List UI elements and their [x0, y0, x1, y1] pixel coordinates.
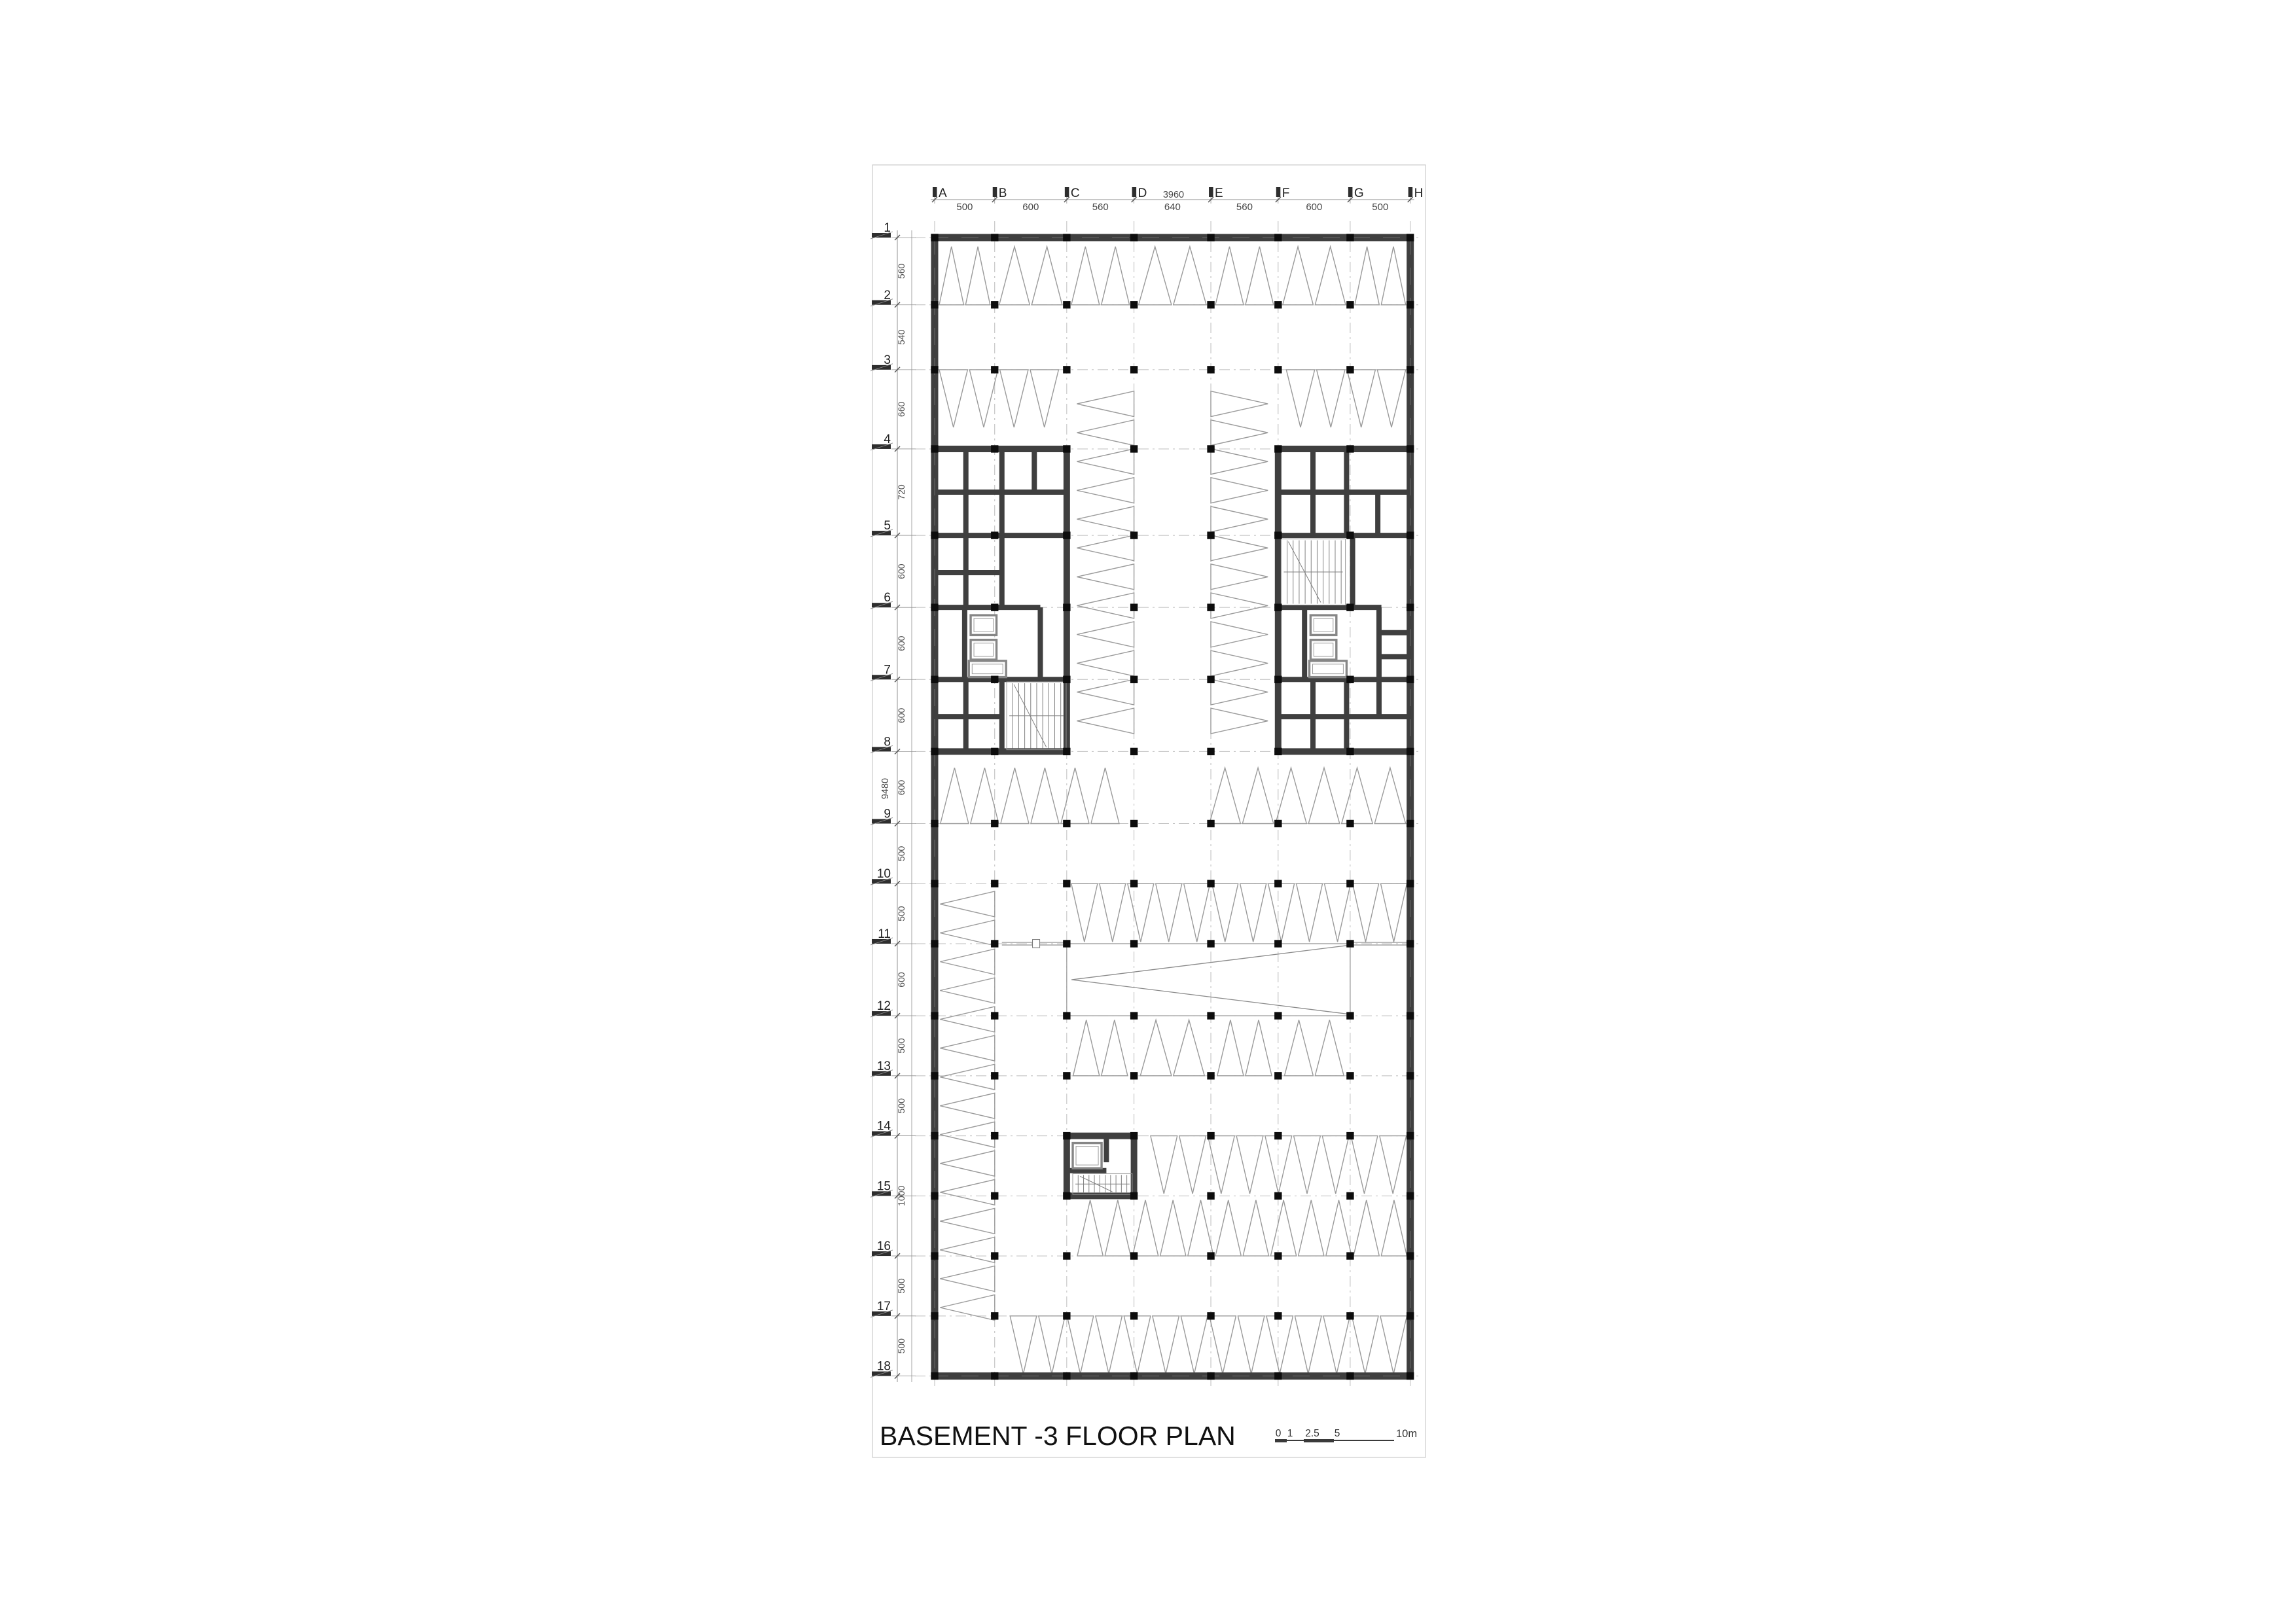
structural-column: [1407, 1372, 1414, 1380]
parking-stall: [1077, 679, 1134, 705]
structural-column: [1346, 234, 1354, 241]
structural-column: [1130, 1252, 1138, 1259]
structural-column: [1407, 1252, 1414, 1259]
structural-column: [991, 1372, 998, 1380]
parking-stall: [1071, 883, 1098, 942]
label: 640: [1164, 202, 1181, 213]
parking-stall: [1212, 883, 1238, 942]
overall-width-dimension: 3960: [1163, 190, 1184, 200]
structural-column: [1130, 820, 1138, 827]
structural-column: [1130, 234, 1138, 241]
parking-stall: [1381, 883, 1407, 942]
structural-column: [1274, 1252, 1282, 1259]
structural-column: [1207, 1072, 1214, 1079]
structural-column: [1207, 531, 1214, 539]
parking-stall: [940, 1093, 995, 1118]
building-walls: [931, 238, 1414, 1376]
parking-stall: [999, 247, 1030, 305]
grid-tag-tick: [1348, 187, 1353, 197]
parking-stall: [1184, 883, 1210, 942]
structural-column: [991, 940, 998, 947]
parking-stall: [1210, 1316, 1236, 1374]
structural-column: [1207, 1192, 1214, 1200]
label: 500: [896, 1098, 906, 1114]
parking-stall: [1270, 1200, 1296, 1256]
structural-column: [1207, 1252, 1214, 1259]
grid-tag-tick: [1276, 187, 1281, 197]
structural-column: [1207, 234, 1214, 241]
structural-column: [1207, 748, 1214, 755]
structural-column: [1346, 676, 1354, 683]
parking-stall: [940, 978, 995, 1003]
parking-stall: [1128, 883, 1154, 942]
parking-stall: [1297, 883, 1323, 942]
parking-stall: [940, 1007, 995, 1032]
structural-column: [1274, 301, 1282, 308]
parking-stall: [1246, 1020, 1272, 1076]
structural-column: [991, 366, 998, 373]
grid-tag-tick: [933, 187, 937, 197]
grid-column-label: D: [1138, 187, 1147, 200]
structural-column: [1274, 1132, 1282, 1139]
parking-stall: [1242, 768, 1274, 823]
structural-column: [1130, 1132, 1138, 1139]
structural-column: [1274, 445, 1282, 452]
structural-column: [1274, 748, 1282, 755]
structural-column: [1130, 445, 1138, 452]
scale-bar-segment: [1275, 1439, 1287, 1442]
structural-column: [1063, 1192, 1070, 1200]
parking-stall: [940, 891, 995, 917]
parking-stall: [1160, 1200, 1186, 1256]
dimension-ruler-left: 5605406607206006006006005005006005005001…: [870, 221, 916, 1382]
structural-column: [1274, 1372, 1282, 1380]
structural-column: [1063, 234, 1070, 241]
parking-stall: [941, 768, 969, 823]
structural-column: [1346, 1312, 1354, 1319]
structural-column: [1346, 940, 1354, 947]
structural-column: [1063, 820, 1070, 827]
parking-stall: [1096, 1316, 1122, 1374]
grid-row-label: 13: [877, 1060, 891, 1073]
structural-column: [1130, 748, 1138, 755]
parking-stall: [1308, 768, 1340, 823]
door-symbol: [1033, 940, 1040, 948]
structural-column: [1063, 940, 1070, 947]
structural-column: [1407, 234, 1414, 241]
drawing-sheet: 500600560640560600500ABCDEFGH56054066072…: [0, 0, 2296, 1623]
parking-stall: [1102, 1020, 1128, 1076]
sheet-border: [872, 165, 1426, 1457]
label: 500: [896, 1278, 906, 1294]
parking-stall: [1342, 768, 1373, 823]
grid-row-label: 7: [884, 663, 891, 677]
structural-column: [1207, 676, 1214, 683]
grid-column-label: F: [1282, 187, 1290, 200]
label: 500: [956, 202, 973, 213]
scale-label-10m: 10m: [1396, 1428, 1417, 1440]
parking-stall: [1132, 1200, 1158, 1256]
structural-column: [991, 1132, 998, 1139]
parking-stall: [1001, 768, 1029, 823]
structural-column: [1207, 301, 1214, 308]
structural-column: [1063, 1252, 1070, 1259]
parking-stall: [1000, 370, 1028, 427]
stair: [1073, 1173, 1132, 1194]
structural-column: [1407, 445, 1414, 452]
structural-column: [1063, 1312, 1070, 1319]
structural-column: [991, 301, 998, 308]
parking-stall: [1326, 1200, 1352, 1256]
parking-stall: [1238, 1316, 1265, 1374]
parking-stall: [1071, 247, 1100, 305]
parking-stall: [940, 1266, 995, 1292]
parking-stall: [1240, 883, 1266, 942]
structural-column: [991, 445, 998, 452]
parking-stall: [1077, 535, 1134, 561]
structural-column: [1063, 748, 1070, 755]
grid-row-label: 2: [884, 289, 891, 302]
parking-stall: [1077, 1200, 1103, 1256]
structural-column: [1407, 940, 1414, 947]
grid-tag-tick: [1065, 187, 1069, 197]
structural-column: [1346, 1072, 1354, 1079]
elevator-shaft: [1310, 661, 1347, 677]
structural-column: [1207, 603, 1214, 611]
parking-stall: [1030, 370, 1058, 427]
parking-stall: [1211, 478, 1268, 503]
parking-stall: [940, 1238, 995, 1263]
parking-stall: [1102, 247, 1130, 305]
structural-column: [1130, 366, 1138, 373]
structural-column: [931, 445, 938, 452]
structural-column: [1207, 1312, 1214, 1319]
structural-column: [1274, 234, 1282, 241]
structural-column: [1274, 676, 1282, 683]
structural-column: [1130, 676, 1138, 683]
label: 600: [896, 635, 906, 651]
structural-column: [931, 301, 938, 308]
parking-stall: [1215, 247, 1244, 305]
structural-column: [1063, 366, 1070, 373]
structural-column: [1274, 531, 1282, 539]
structural-column: [991, 748, 998, 755]
structural-column: [1130, 1012, 1138, 1019]
structural-column: [1407, 603, 1414, 611]
grid-row-label: 3: [884, 353, 891, 367]
scale-label-0: 0: [1276, 1428, 1282, 1439]
parking-stall: [1211, 449, 1268, 474]
structural-column: [1130, 531, 1138, 539]
structural-column: [1063, 445, 1070, 452]
structural-column: [1407, 820, 1414, 827]
parking-stall: [1295, 1316, 1321, 1374]
parking-stall: [1283, 247, 1314, 305]
grid-row-label: 4: [884, 433, 891, 446]
parking-stall: [1243, 1200, 1268, 1256]
grid-row-label: 12: [877, 999, 891, 1013]
parking-stall: [1077, 708, 1134, 734]
parking-stall: [1236, 1136, 1263, 1194]
grid-row-label: 18: [877, 1360, 891, 1374]
structural-column: [991, 1192, 998, 1200]
structural-column: [1407, 676, 1414, 683]
parking-stall: [940, 1150, 995, 1176]
parking-stall: [1317, 370, 1345, 427]
parking-stall: [1077, 420, 1134, 446]
parking-stall: [1211, 391, 1268, 417]
structural-column: [991, 676, 998, 683]
scale-bar-segment: [1304, 1439, 1334, 1442]
label: 560: [896, 263, 906, 279]
structural-column: [1274, 1072, 1282, 1079]
grid-tag-tick: [993, 187, 997, 197]
structural-column: [1346, 880, 1354, 887]
label: 1000: [896, 1186, 906, 1206]
structural-column: [1407, 531, 1414, 539]
parking-stall: [1381, 1200, 1407, 1256]
structural-column: [1130, 1312, 1138, 1319]
parking-stalls: [939, 247, 1407, 1374]
structural-column: [1063, 880, 1070, 887]
structural-column: [1207, 940, 1214, 947]
label: 660: [896, 402, 906, 418]
grid-column-label: C: [1071, 187, 1080, 200]
parking-stall: [1077, 507, 1134, 532]
grid-row-label: 10: [877, 867, 891, 881]
label: 500: [896, 846, 906, 861]
structural-column: [931, 234, 938, 241]
label: 600: [896, 563, 906, 579]
elevator-shaft: [1073, 1143, 1102, 1169]
structural-column: [1130, 1192, 1138, 1200]
parking-stall: [1010, 1316, 1037, 1374]
stair: [1007, 682, 1066, 750]
parking-stall: [1077, 593, 1134, 618]
parking-stall: [1276, 768, 1307, 823]
structural-column: [1407, 1072, 1414, 1079]
parking-stall: [1246, 247, 1274, 305]
structural-column: [931, 940, 938, 947]
structural-column: [1207, 366, 1214, 373]
label: 500: [896, 906, 906, 921]
parking-stall: [1156, 883, 1182, 942]
structural-column: [1207, 820, 1214, 827]
label: 560: [1092, 202, 1109, 213]
parking-stall: [1351, 1136, 1378, 1194]
structural-column: [1346, 820, 1354, 827]
parking-stall: [1077, 651, 1134, 676]
structural-column: [1063, 531, 1070, 539]
parking-stall: [1266, 1316, 1293, 1374]
parking-stall: [1211, 622, 1268, 647]
structural-column: [1407, 1312, 1414, 1319]
scale-label-1: 1: [1287, 1428, 1293, 1439]
parking-stall: [1268, 883, 1295, 942]
parking-stall: [1354, 1200, 1379, 1256]
structural-column: [1407, 1012, 1414, 1019]
parking-stall: [1091, 768, 1119, 823]
parking-stall: [1315, 247, 1346, 305]
structural-column: [931, 1312, 938, 1319]
parking-stall: [1067, 1316, 1094, 1374]
label: 600: [1022, 202, 1039, 213]
parking-stall: [1322, 1136, 1349, 1194]
structural-column: [1063, 301, 1070, 308]
structural-column: [1207, 1012, 1214, 1019]
structural-column: [931, 1072, 938, 1079]
structural-grid-lines: [915, 221, 1420, 1386]
parking-stall: [940, 1064, 995, 1090]
structural-column: [931, 748, 938, 755]
parking-stall: [940, 949, 995, 974]
parking-stall: [1353, 883, 1379, 942]
scale-label-5: 5: [1335, 1428, 1340, 1439]
structural-column: [1346, 1372, 1354, 1380]
structural-column: [1346, 1192, 1354, 1200]
parking-stall: [940, 1122, 995, 1147]
parking-stall: [940, 1179, 995, 1205]
structural-column: [991, 1072, 998, 1079]
parking-stall: [969, 370, 997, 427]
grid-column-label: B: [999, 187, 1007, 200]
parking-stall: [1151, 1136, 1177, 1194]
parking-stall: [1211, 708, 1268, 734]
parking-stall: [1315, 1020, 1344, 1076]
parking-stall: [1100, 883, 1126, 942]
drawing-title: BASEMENT -3 FLOOR PLAN: [880, 1421, 1236, 1450]
parking-stall: [1105, 1200, 1130, 1256]
parking-stall: [1031, 247, 1062, 305]
structural-column: [931, 603, 938, 611]
parking-stall: [1077, 391, 1134, 417]
structural-column: [1274, 603, 1282, 611]
structural-column: [1407, 748, 1414, 755]
parking-stall: [1299, 1200, 1324, 1256]
structural-column: [991, 603, 998, 611]
parking-stall: [1380, 1136, 1407, 1194]
structural-columns: [931, 234, 1414, 1380]
elevator-shaft: [969, 661, 1006, 677]
parking-stall: [1217, 1020, 1244, 1076]
structural-column: [1130, 603, 1138, 611]
parking-stall: [1377, 370, 1405, 427]
parking-stall: [1153, 1316, 1179, 1374]
parking-stall: [1352, 1316, 1378, 1374]
structural-column: [991, 1252, 998, 1259]
parking-stall: [1077, 478, 1134, 503]
parking-stall: [1347, 370, 1375, 427]
line: [1071, 980, 1350, 1014]
grid-row-label: 5: [884, 519, 891, 533]
structural-column: [1130, 301, 1138, 308]
grid-column-label: G: [1354, 187, 1364, 200]
parking-stall: [940, 1295, 995, 1321]
label: 600: [896, 707, 906, 723]
structural-column: [1274, 366, 1282, 373]
parking-stall: [1124, 1316, 1151, 1374]
parking-stall: [1215, 1200, 1241, 1256]
structural-column: [931, 366, 938, 373]
overall-height-dimension: 9480: [880, 778, 891, 799]
ramp: [1002, 940, 1410, 1016]
parking-stall: [1174, 1020, 1205, 1076]
grid-row-label: 6: [884, 591, 891, 605]
structural-column: [1407, 1132, 1414, 1139]
label: 500: [896, 1338, 906, 1354]
structural-column: [1407, 880, 1414, 887]
parking-stall: [1286, 370, 1314, 427]
parking-stall: [1061, 768, 1089, 823]
parking-stall: [1188, 1200, 1213, 1256]
parking-stall: [940, 920, 995, 946]
parking-stall: [1140, 1020, 1172, 1076]
parking-stall: [1374, 768, 1406, 823]
structural-column: [1207, 880, 1214, 887]
structural-column: [991, 1012, 998, 1019]
label: 540: [896, 329, 906, 345]
grid-row-label: 16: [877, 1240, 891, 1253]
parking-stall: [1211, 420, 1268, 446]
structural-column: [1274, 880, 1282, 887]
structural-column: [931, 676, 938, 683]
floor-plan-svg: 500600560640560600500ABCDEFGH56054066072…: [0, 0, 2296, 1623]
structural-column: [1063, 1372, 1070, 1380]
parking-stall: [1174, 247, 1206, 305]
stair: [1281, 539, 1345, 605]
structural-column: [1346, 531, 1354, 539]
parking-stall: [1323, 1316, 1350, 1374]
structural-column: [1346, 1252, 1354, 1259]
grid-row-label: 9: [884, 807, 891, 821]
parking-stall: [1211, 593, 1268, 618]
structural-column: [991, 1312, 998, 1319]
grid-row-label: 11: [878, 927, 891, 941]
core-right: [1278, 449, 1410, 751]
parking-stall: [1031, 768, 1059, 823]
grid-row-label: 1: [884, 221, 891, 235]
parking-stall: [1039, 1316, 1066, 1374]
parking-stall: [1077, 622, 1134, 647]
scale-label-2_5: 2.5: [1305, 1428, 1319, 1439]
parking-stall: [1211, 651, 1268, 676]
parking-stall: [939, 247, 963, 305]
parking-stall: [1211, 679, 1268, 705]
structural-column: [931, 1372, 938, 1380]
parking-stall: [1139, 247, 1172, 305]
structural-column: [1274, 1312, 1282, 1319]
scale-bar: 0 1 2.5 5 10m: [1275, 1428, 1417, 1442]
parking-stall: [1355, 247, 1379, 305]
structural-column: [1207, 1132, 1214, 1139]
sheet-border-rect: [872, 165, 1426, 1457]
structural-column: [1346, 301, 1354, 308]
label: 500: [1372, 202, 1388, 213]
structural-column: [1346, 445, 1354, 452]
structural-column: [1346, 1132, 1354, 1139]
parking-stall: [1381, 247, 1405, 305]
core-small: [1067, 1136, 1134, 1196]
structural-column: [1407, 301, 1414, 308]
parking-stall: [940, 1035, 995, 1061]
structural-column: [1407, 1192, 1414, 1200]
parking-stall: [1210, 768, 1241, 823]
structural-column: [1130, 880, 1138, 887]
label: 560: [1236, 202, 1253, 213]
parking-stall: [965, 247, 990, 305]
grid-row-label: 17: [877, 1300, 891, 1313]
grid-row-label: 15: [877, 1179, 891, 1193]
